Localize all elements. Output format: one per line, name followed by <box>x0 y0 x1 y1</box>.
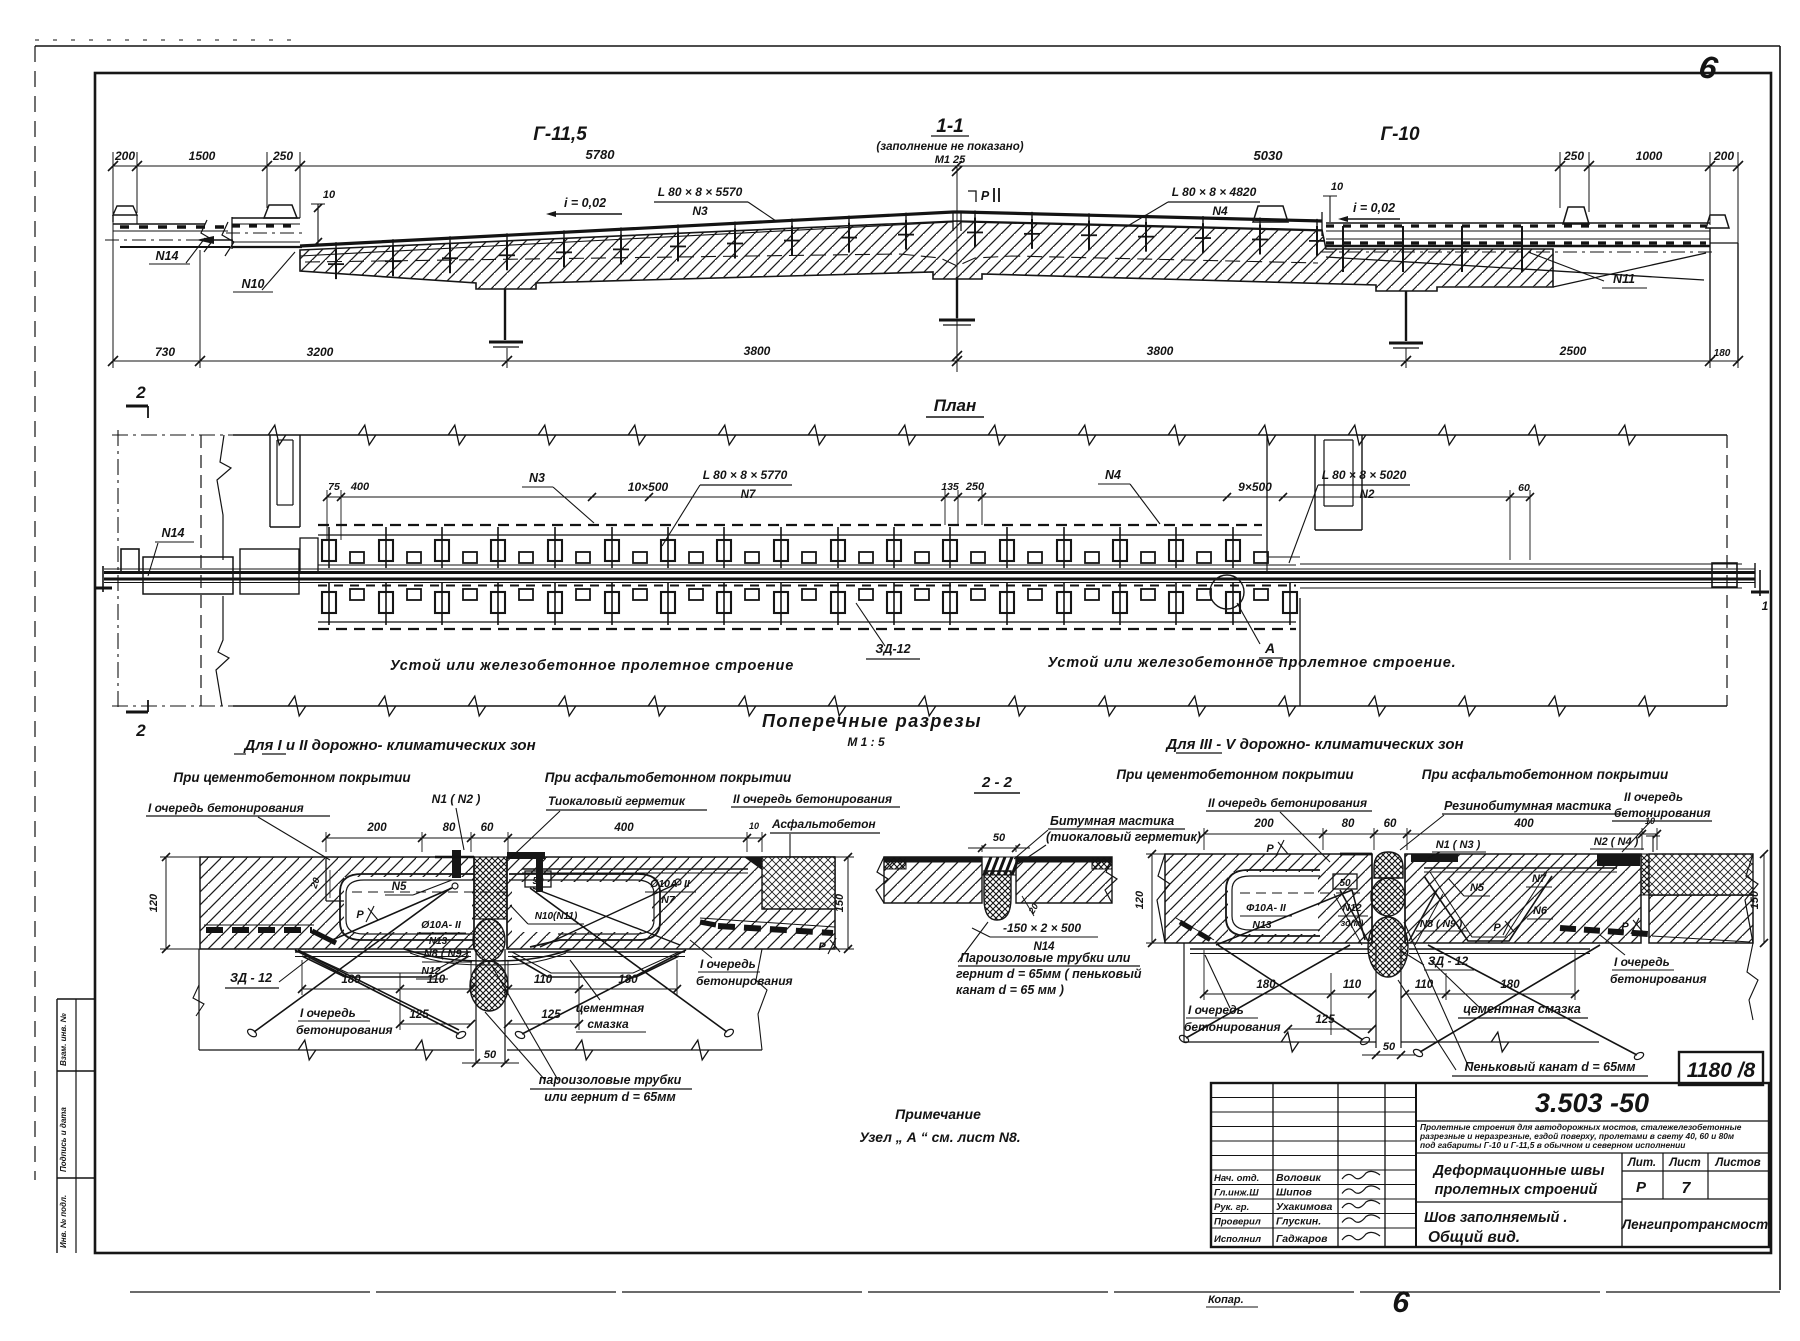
svg-text:5030: 5030 <box>1254 148 1284 163</box>
svg-text:II очередь: II очередь <box>1624 790 1683 804</box>
svg-text:125: 125 <box>541 1009 561 1021</box>
svg-text:200: 200 <box>1713 149 1734 163</box>
svg-text:110: 110 <box>1415 979 1434 991</box>
svg-text:План: План <box>934 396 977 415</box>
svg-text:ЗД - 12: ЗД - 12 <box>230 971 272 985</box>
svg-text:(тиокаловый герметик): (тиокаловый герметик) <box>1046 830 1201 844</box>
svg-text:L 80 × 8 × 5570: L 80 × 8 × 5570 <box>658 185 743 199</box>
svg-text:80: 80 <box>1342 818 1355 830</box>
svg-text:125: 125 <box>409 1009 429 1021</box>
svg-text:цементная: цементная <box>576 1001 644 1015</box>
svg-text:Гл.инж.Ш: Гл.инж.Ш <box>1214 1188 1259 1199</box>
svg-text:1: 1 <box>1762 599 1769 613</box>
svg-text:730: 730 <box>155 345 175 359</box>
svg-text:180: 180 <box>341 974 361 986</box>
svg-text:N7: N7 <box>661 894 676 906</box>
svg-text:Р: Р <box>1636 1179 1647 1196</box>
svg-text:Асфальтобетон: Асфальтобетон <box>771 817 876 831</box>
svg-text:400: 400 <box>350 481 370 493</box>
svg-text:Ø10А- II: Ø10А- II <box>650 878 691 890</box>
svg-text:Ухакимова: Ухакимова <box>1276 1201 1333 1213</box>
svg-text:При асфальтобетонном покрыти: При асфальтобетонном покрытии <box>545 770 792 785</box>
svg-text:N11: N11 <box>1613 272 1635 286</box>
svg-text:N5: N5 <box>1470 882 1485 894</box>
svg-text:Взам. инв. №: Взам. инв. № <box>59 1012 68 1066</box>
svg-text:Р: Р <box>1266 843 1274 855</box>
svg-text:N3: N3 <box>692 204 708 218</box>
svg-text:I очередь: I очередь <box>300 1006 356 1020</box>
svg-text:5780: 5780 <box>586 147 616 162</box>
svg-text:пароизоловые трубки: пароизоловые трубки <box>539 1073 682 1087</box>
svg-text:Глускин.: Глускин. <box>1276 1216 1321 1228</box>
svg-text:гернит d = 65мм ( пеньковый: гернит d = 65мм ( пеньковый <box>956 967 1142 981</box>
svg-text:10: 10 <box>323 189 336 201</box>
svg-text:Подпись и дата: Подпись и дата <box>59 1107 68 1172</box>
svg-text:ЗД - 12: ЗД - 12 <box>1428 954 1469 968</box>
svg-text:L 80 × 8 × 4820: L 80 × 8 × 4820 <box>1172 185 1257 199</box>
svg-text:6: 6 <box>1391 1285 1411 1319</box>
svg-text:400: 400 <box>1513 818 1534 830</box>
svg-text:Р: Р <box>1493 922 1501 934</box>
svg-text:канат d = 65 мм ): канат d = 65 мм ) <box>956 983 1064 997</box>
svg-text:Г-10: Г-10 <box>1380 124 1420 145</box>
svg-text:Исполнил: Исполнил <box>1214 1234 1261 1245</box>
svg-text:2 - 2: 2 - 2 <box>981 774 1013 791</box>
svg-text:Копар.: Копар. <box>1208 1294 1244 1306</box>
svg-text:200: 200 <box>114 149 135 163</box>
svg-text:М 1 : 5: М 1 : 5 <box>847 735 885 749</box>
svg-text:Лит.: Лит. <box>1627 1157 1656 1169</box>
svg-text:7: 7 <box>1682 1180 1692 1197</box>
svg-text:бетонирования: бетонирования <box>1614 806 1711 820</box>
svg-text:Инв. № подл.: Инв. № подл. <box>59 1195 68 1248</box>
svg-text:200: 200 <box>366 822 387 834</box>
svg-text:Для I и II дорожно- климатич: Для I и II дорожно- климатических зон <box>242 737 535 754</box>
svg-text:2: 2 <box>135 721 146 740</box>
svg-text:N3: N3 <box>529 471 545 485</box>
svg-text:Шипов: Шипов <box>1276 1187 1313 1199</box>
svg-text:II очередь бетонирования: II очередь бетонирования <box>733 792 892 806</box>
svg-text:120: 120 <box>1134 890 1146 909</box>
svg-text:Резинобитумная мастика: Резинобитумная мастика <box>1444 799 1611 813</box>
svg-text:i = 0,02: i = 0,02 <box>1353 201 1395 215</box>
svg-text:3800: 3800 <box>744 344 771 358</box>
svg-text:N8 ( N9 ): N8 ( N9 ) <box>1420 918 1463 930</box>
svg-text:110: 110 <box>427 974 446 986</box>
svg-text:Устой или железобетонное пр: Устой или железобетонное пролетное строе… <box>390 658 794 674</box>
svg-text:N4: N4 <box>1212 204 1228 218</box>
svg-text:Проверил: Проверил <box>1214 1217 1261 1228</box>
svg-text:9×500: 9×500 <box>1238 480 1272 494</box>
svg-text:Поперечные разрезы: Поперечные разрезы <box>762 711 982 731</box>
svg-text:бетонирования: бетонирования <box>1184 1020 1281 1034</box>
svg-text:N4: N4 <box>1105 468 1121 482</box>
svg-text:L 80 × 8 × 5770: L 80 × 8 × 5770 <box>703 468 788 482</box>
svg-text:N14: N14 <box>156 249 179 263</box>
svg-text:бетонирования: бетонирования <box>296 1023 393 1037</box>
svg-text:3.503 -50: 3.503 -50 <box>1535 1088 1649 1118</box>
svg-text:1000: 1000 <box>1636 149 1663 163</box>
svg-text:Р: Р <box>1621 921 1629 933</box>
svg-text:400: 400 <box>613 822 634 834</box>
svg-text:I очередь: I очередь <box>700 957 756 971</box>
svg-text:10: 10 <box>1331 181 1344 193</box>
svg-text:Шов заполняемый .: Шов заполняемый . <box>1424 1210 1567 1226</box>
svg-text:Пароизоловые трубки или: Пароизоловые трубки или <box>960 951 1131 965</box>
svg-text:Ленгипротрансмост: Ленгипротрансмост <box>1621 1217 1768 1232</box>
svg-text:N10: N10 <box>242 277 265 291</box>
svg-text:Нач. отд.: Нач. отд. <box>1214 1173 1259 1184</box>
svg-text:250: 250 <box>272 149 293 163</box>
svg-text:N13: N13 <box>429 936 448 947</box>
svg-text:50: 50 <box>484 1049 497 1061</box>
svg-text:(заполнение не показано): (заполнение не показано) <box>876 141 1023 153</box>
svg-text:i = 0,02: i = 0,02 <box>564 196 606 210</box>
svg-text:50: 50 <box>993 832 1006 844</box>
svg-text:Общий вид.: Общий вид. <box>1428 1229 1520 1246</box>
svg-text:Воловик: Воловик <box>1276 1172 1322 1184</box>
svg-text:I очередь: I очередь <box>1188 1003 1244 1017</box>
svg-text:Г-11,5: Г-11,5 <box>533 124 587 145</box>
svg-text:бетонирования: бетонирования <box>696 974 793 988</box>
svg-text:125: 125 <box>1315 1014 1335 1026</box>
svg-text:I очередь бетонирования: I очередь бетонирования <box>148 801 304 815</box>
svg-text:110: 110 <box>534 974 553 986</box>
svg-text:При асфальтобетонном покрыти: При асфальтобетонном покрытии <box>1422 767 1669 782</box>
svg-text:80: 80 <box>443 822 456 834</box>
svg-text:цементная смазка: цементная смазка <box>1463 1002 1581 1016</box>
svg-text:N7: N7 <box>741 489 756 501</box>
svg-text:смазка: смазка <box>587 1017 629 1031</box>
svg-text:Гаджаров: Гаджаров <box>1276 1233 1328 1245</box>
svg-text:2: 2 <box>135 383 146 402</box>
svg-text:180: 180 <box>618 974 638 986</box>
svg-text:75: 75 <box>328 481 340 493</box>
svg-text:250: 250 <box>1563 149 1584 163</box>
svg-text:180: 180 <box>1500 979 1520 991</box>
svg-text:180: 180 <box>1256 979 1276 991</box>
svg-text:Р: Р <box>981 189 990 203</box>
svg-text:110: 110 <box>1343 979 1362 991</box>
svg-text:2500: 2500 <box>1559 344 1587 358</box>
svg-text:N5: N5 <box>392 881 407 893</box>
svg-text:N14: N14 <box>162 526 185 540</box>
svg-text:Ф10А- II: Ф10А- II <box>1246 902 1287 914</box>
svg-text:При цементобетонном покрытии: При цементобетонном покрытии <box>1116 767 1354 782</box>
svg-text:под габариты Г-10 и Г-11,5 в: под габариты Г-10 и Г-11,5 в обычном и с… <box>1420 1140 1685 1150</box>
svg-text:N10(N11): N10(N11) <box>535 911 578 922</box>
svg-text:N6: N6 <box>1533 905 1548 917</box>
svg-text:Пеньковый канат d = 65мм: Пеньковый канат d = 65мм <box>1464 1060 1635 1074</box>
svg-text:II очередь бетонирования: II очередь бетонирования <box>1208 796 1367 810</box>
svg-text:50: 50 <box>1339 878 1351 889</box>
svg-text:1500: 1500 <box>189 149 216 163</box>
svg-text:10×500: 10×500 <box>628 480 669 494</box>
svg-text:Р: Р <box>356 909 364 921</box>
svg-text:А: А <box>1264 640 1275 656</box>
svg-text:150: 150 <box>834 893 846 912</box>
svg-text:Ø10А- II: Ø10А- II <box>421 919 462 931</box>
svg-text:60: 60 <box>1384 818 1397 830</box>
svg-text:N1 ( N2 ): N1 ( N2 ) <box>432 792 481 806</box>
svg-text:Устой или железобетонное пр: Устой или железобетонное пролетное строе… <box>1047 655 1456 671</box>
svg-text:135: 135 <box>941 481 959 493</box>
svg-text:60: 60 <box>481 822 494 834</box>
svg-text:50: 50 <box>1383 1041 1396 1053</box>
svg-text:150: 150 <box>1749 890 1761 909</box>
svg-text:Листов: Листов <box>1714 1157 1760 1169</box>
svg-text:Лист: Лист <box>1668 1157 1701 1169</box>
svg-text:N2: N2 <box>1360 489 1375 501</box>
svg-text:пролетных строений: пролетных строений <box>1435 1182 1598 1198</box>
svg-text:180: 180 <box>1714 348 1731 359</box>
svg-text:N7: N7 <box>1532 873 1547 885</box>
svg-text:I очередь: I очередь <box>1614 955 1670 969</box>
svg-text:3800: 3800 <box>1147 344 1174 358</box>
svg-text:Узел „ А “ см. лист N8.: Узел „ А “ см. лист N8. <box>859 1129 1020 1145</box>
svg-text:ЗД-12: ЗД-12 <box>875 642 910 656</box>
svg-text:60: 60 <box>1518 482 1530 494</box>
svg-text:-150 × 2 × 500: -150 × 2 × 500 <box>1003 921 1081 935</box>
svg-text:Р: Р <box>818 941 826 953</box>
svg-text:Битумная мастика: Битумная мастика <box>1050 814 1174 828</box>
svg-text:200: 200 <box>1253 818 1274 830</box>
svg-text:бетонирования: бетонирования <box>1610 972 1707 986</box>
svg-text:М1 25: М1 25 <box>935 154 966 166</box>
svg-text:Для III - V дорожно- климати: Для III - V дорожно- климатических зон <box>1164 736 1463 753</box>
svg-text:При цементобетонном покрытии: При цементобетонном покрытии <box>173 770 411 785</box>
svg-text:L 80 × 8 × 5020: L 80 × 8 × 5020 <box>1322 468 1407 482</box>
svg-text:или гернит d = 65мм: или гернит d = 65мм <box>544 1090 676 1104</box>
svg-text:Тиокаловый герметик: Тиокаловый герметик <box>548 794 686 808</box>
svg-text:10: 10 <box>749 821 759 831</box>
svg-text:1-1: 1-1 <box>936 116 963 137</box>
svg-text:N1 ( N3 ): N1 ( N3 ) <box>1436 839 1481 851</box>
svg-text:Деформационные швы: Деформационные швы <box>1432 1163 1606 1179</box>
svg-text:3200: 3200 <box>307 345 334 359</box>
svg-text:1180 /8: 1180 /8 <box>1687 1059 1756 1082</box>
svg-text:Рук. гр.: Рук. гр. <box>1214 1202 1249 1213</box>
svg-text:120: 120 <box>148 893 160 912</box>
svg-text:N2 ( N4 ): N2 ( N4 ) <box>1594 836 1639 848</box>
svg-text:Примечание: Примечание <box>895 1106 981 1122</box>
